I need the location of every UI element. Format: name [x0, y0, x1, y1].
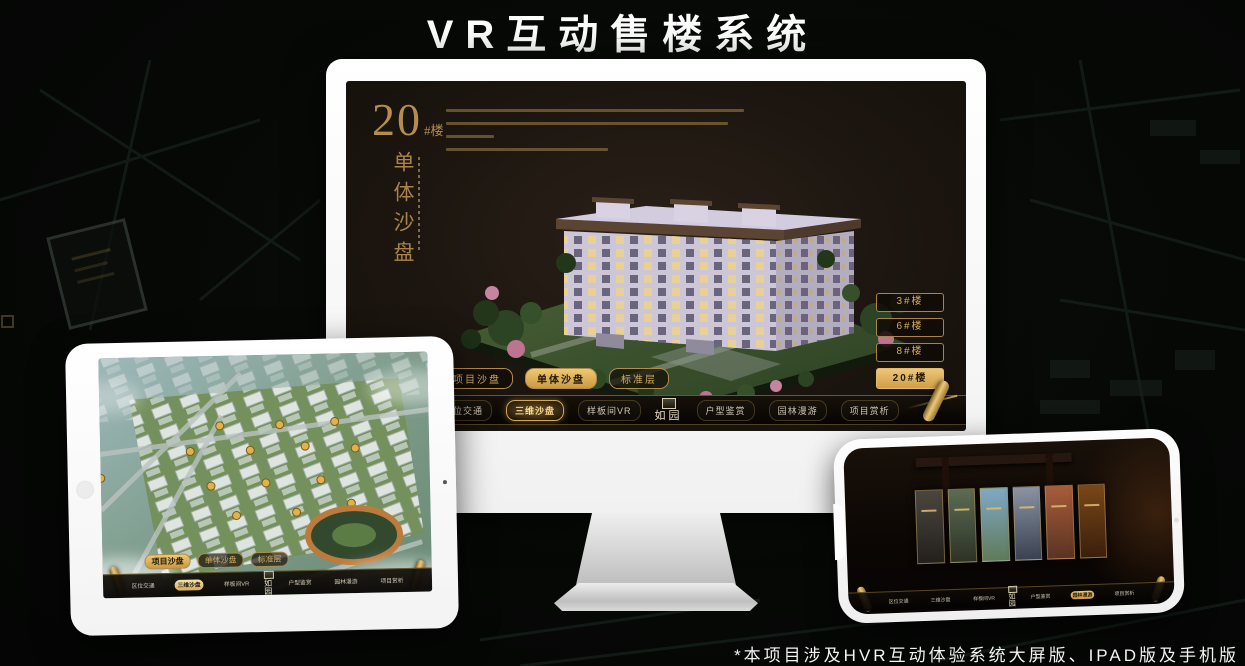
tab-single-building-sandtable[interactable]: 单体沙盘: [197, 552, 243, 568]
brand-logo: 如园: [264, 571, 275, 596]
nav-item-project-gallery[interactable]: 项目赏析: [1113, 589, 1137, 598]
stadium: [307, 507, 400, 563]
building-button[interactable]: 8#楼: [876, 343, 944, 362]
monitor-stand-base: [554, 583, 758, 611]
nav-item-floorplans[interactable]: 户型鉴赏: [697, 400, 755, 421]
scene-gallery: [915, 484, 1107, 565]
seal-icon: [662, 398, 676, 409]
seal-icon: [264, 571, 274, 579]
tab-project-sandtable[interactable]: 项目沙盘: [144, 554, 190, 570]
nav-item-showroom-vr[interactable]: 样板间VR: [578, 400, 641, 421]
block-vertical-title: 单体沙盘: [388, 151, 418, 271]
brand-logo: 如园: [1008, 586, 1018, 608]
home-button[interactable]: [76, 481, 94, 499]
nav-item-3d-sandtable[interactable]: 三维沙盘: [174, 579, 203, 590]
brand-logo: 如园: [655, 398, 683, 422]
panel-label-decoration: [1084, 504, 1099, 507]
block-number: 20: [372, 94, 422, 145]
poster-root: VR互动售楼系统 20#楼 单体沙盘: [0, 0, 1245, 666]
nav-item-showroom-vr[interactable]: 样板间VR: [221, 578, 252, 589]
nav-item-garden-roam[interactable]: 园林漫游: [1071, 590, 1095, 599]
panel-label-decoration: [1051, 505, 1066, 508]
gallery-panel[interactable]: [980, 487, 1010, 562]
gallery-panel[interactable]: [947, 488, 977, 563]
building-selector: 3#楼 6#楼 8#楼 20#楼: [876, 293, 944, 389]
phone-navigation-bar: 区位交通 三维沙盘 样板间VR 如园 户型鉴赏 园林漫游 项目赏析: [848, 581, 1174, 611]
gallery-panel[interactable]: [1045, 485, 1075, 560]
tab-standard-floor[interactable]: 标准层: [609, 368, 669, 389]
camera-icon: [443, 480, 447, 484]
nav-item-floorplans[interactable]: 户型鉴赏: [1029, 592, 1053, 601]
monitor-stand-neck: [576, 513, 736, 585]
nav-item-3d-sandtable[interactable]: 三维沙盘: [506, 400, 564, 421]
nav-item-location[interactable]: 区位交通: [128, 580, 157, 591]
tablet-screen: 项目沙盘 单体沙盘 标准层 区位交通 三维沙盘 样板间VR 如园 户型鉴赏 园林…: [98, 352, 432, 599]
text-line: [446, 109, 744, 112]
tab-single-building-sandtable[interactable]: 单体沙盘: [525, 368, 597, 389]
nav-item-3d-sandtable[interactable]: 三维沙盘: [929, 595, 953, 604]
scroll-icon[interactable]: [912, 381, 958, 423]
panel-label-decoration: [921, 509, 936, 512]
phone-device: 区位交通 三维沙盘 样板间VR 如园 户型鉴赏 园林漫游 项目赏析: [833, 428, 1185, 624]
panel-label-decoration: [1019, 506, 1034, 509]
nav-item-project-gallery[interactable]: 项目赏析: [841, 400, 899, 421]
panel-label-decoration: [954, 508, 969, 511]
block-headline: 20#楼: [372, 97, 444, 143]
phone-screen: 区位交通 三维沙盘 样板间VR 如园 户型鉴赏 园林漫游 项目赏析: [843, 437, 1175, 614]
gallery-panel[interactable]: [915, 489, 945, 564]
nav-item-location[interactable]: 区位交通: [887, 596, 911, 605]
tablet-device: 项目沙盘 单体沙盘 标准层 区位交通 三维沙盘 样板间VR 如园 户型鉴赏 园林…: [65, 336, 459, 636]
nav-item-floorplans[interactable]: 户型鉴赏: [286, 577, 315, 588]
block-number-suffix: #楼: [424, 123, 444, 138]
panel-label-decoration: [986, 507, 1001, 510]
camera-icon: [1174, 518, 1179, 523]
page-title: VR互动售楼系统: [0, 2, 1245, 60]
nav-item-showroom-vr[interactable]: 样板间VR: [971, 593, 997, 602]
tablet-mode-tabs: 项目沙盘 单体沙盘 标准层: [144, 551, 288, 569]
nav-item-garden-roam[interactable]: 园林漫游: [332, 576, 361, 587]
gallery-panel[interactable]: [1077, 484, 1107, 559]
tab-standard-floor[interactable]: 标准层: [250, 551, 288, 567]
vertical-english-decoration: [418, 157, 420, 253]
scroll-rod-decoration: [921, 379, 951, 424]
gallery-panel[interactable]: [1012, 486, 1042, 561]
building-button[interactable]: 3#楼: [876, 293, 944, 312]
building-button[interactable]: 6#楼: [876, 318, 944, 337]
sandtable-mode-tabs: 项目沙盘 单体沙盘 标准层: [441, 368, 669, 389]
text-line: [446, 135, 494, 138]
phone-notch: [833, 504, 846, 560]
footnote: *本项目涉及HVR互动体验系统大屏版、IPAD版及手机版: [734, 641, 1239, 666]
text-line: [446, 122, 728, 125]
nav-item-garden-roam[interactable]: 园林漫游: [769, 400, 827, 421]
nav-item-project-gallery[interactable]: 项目赏析: [378, 575, 407, 586]
